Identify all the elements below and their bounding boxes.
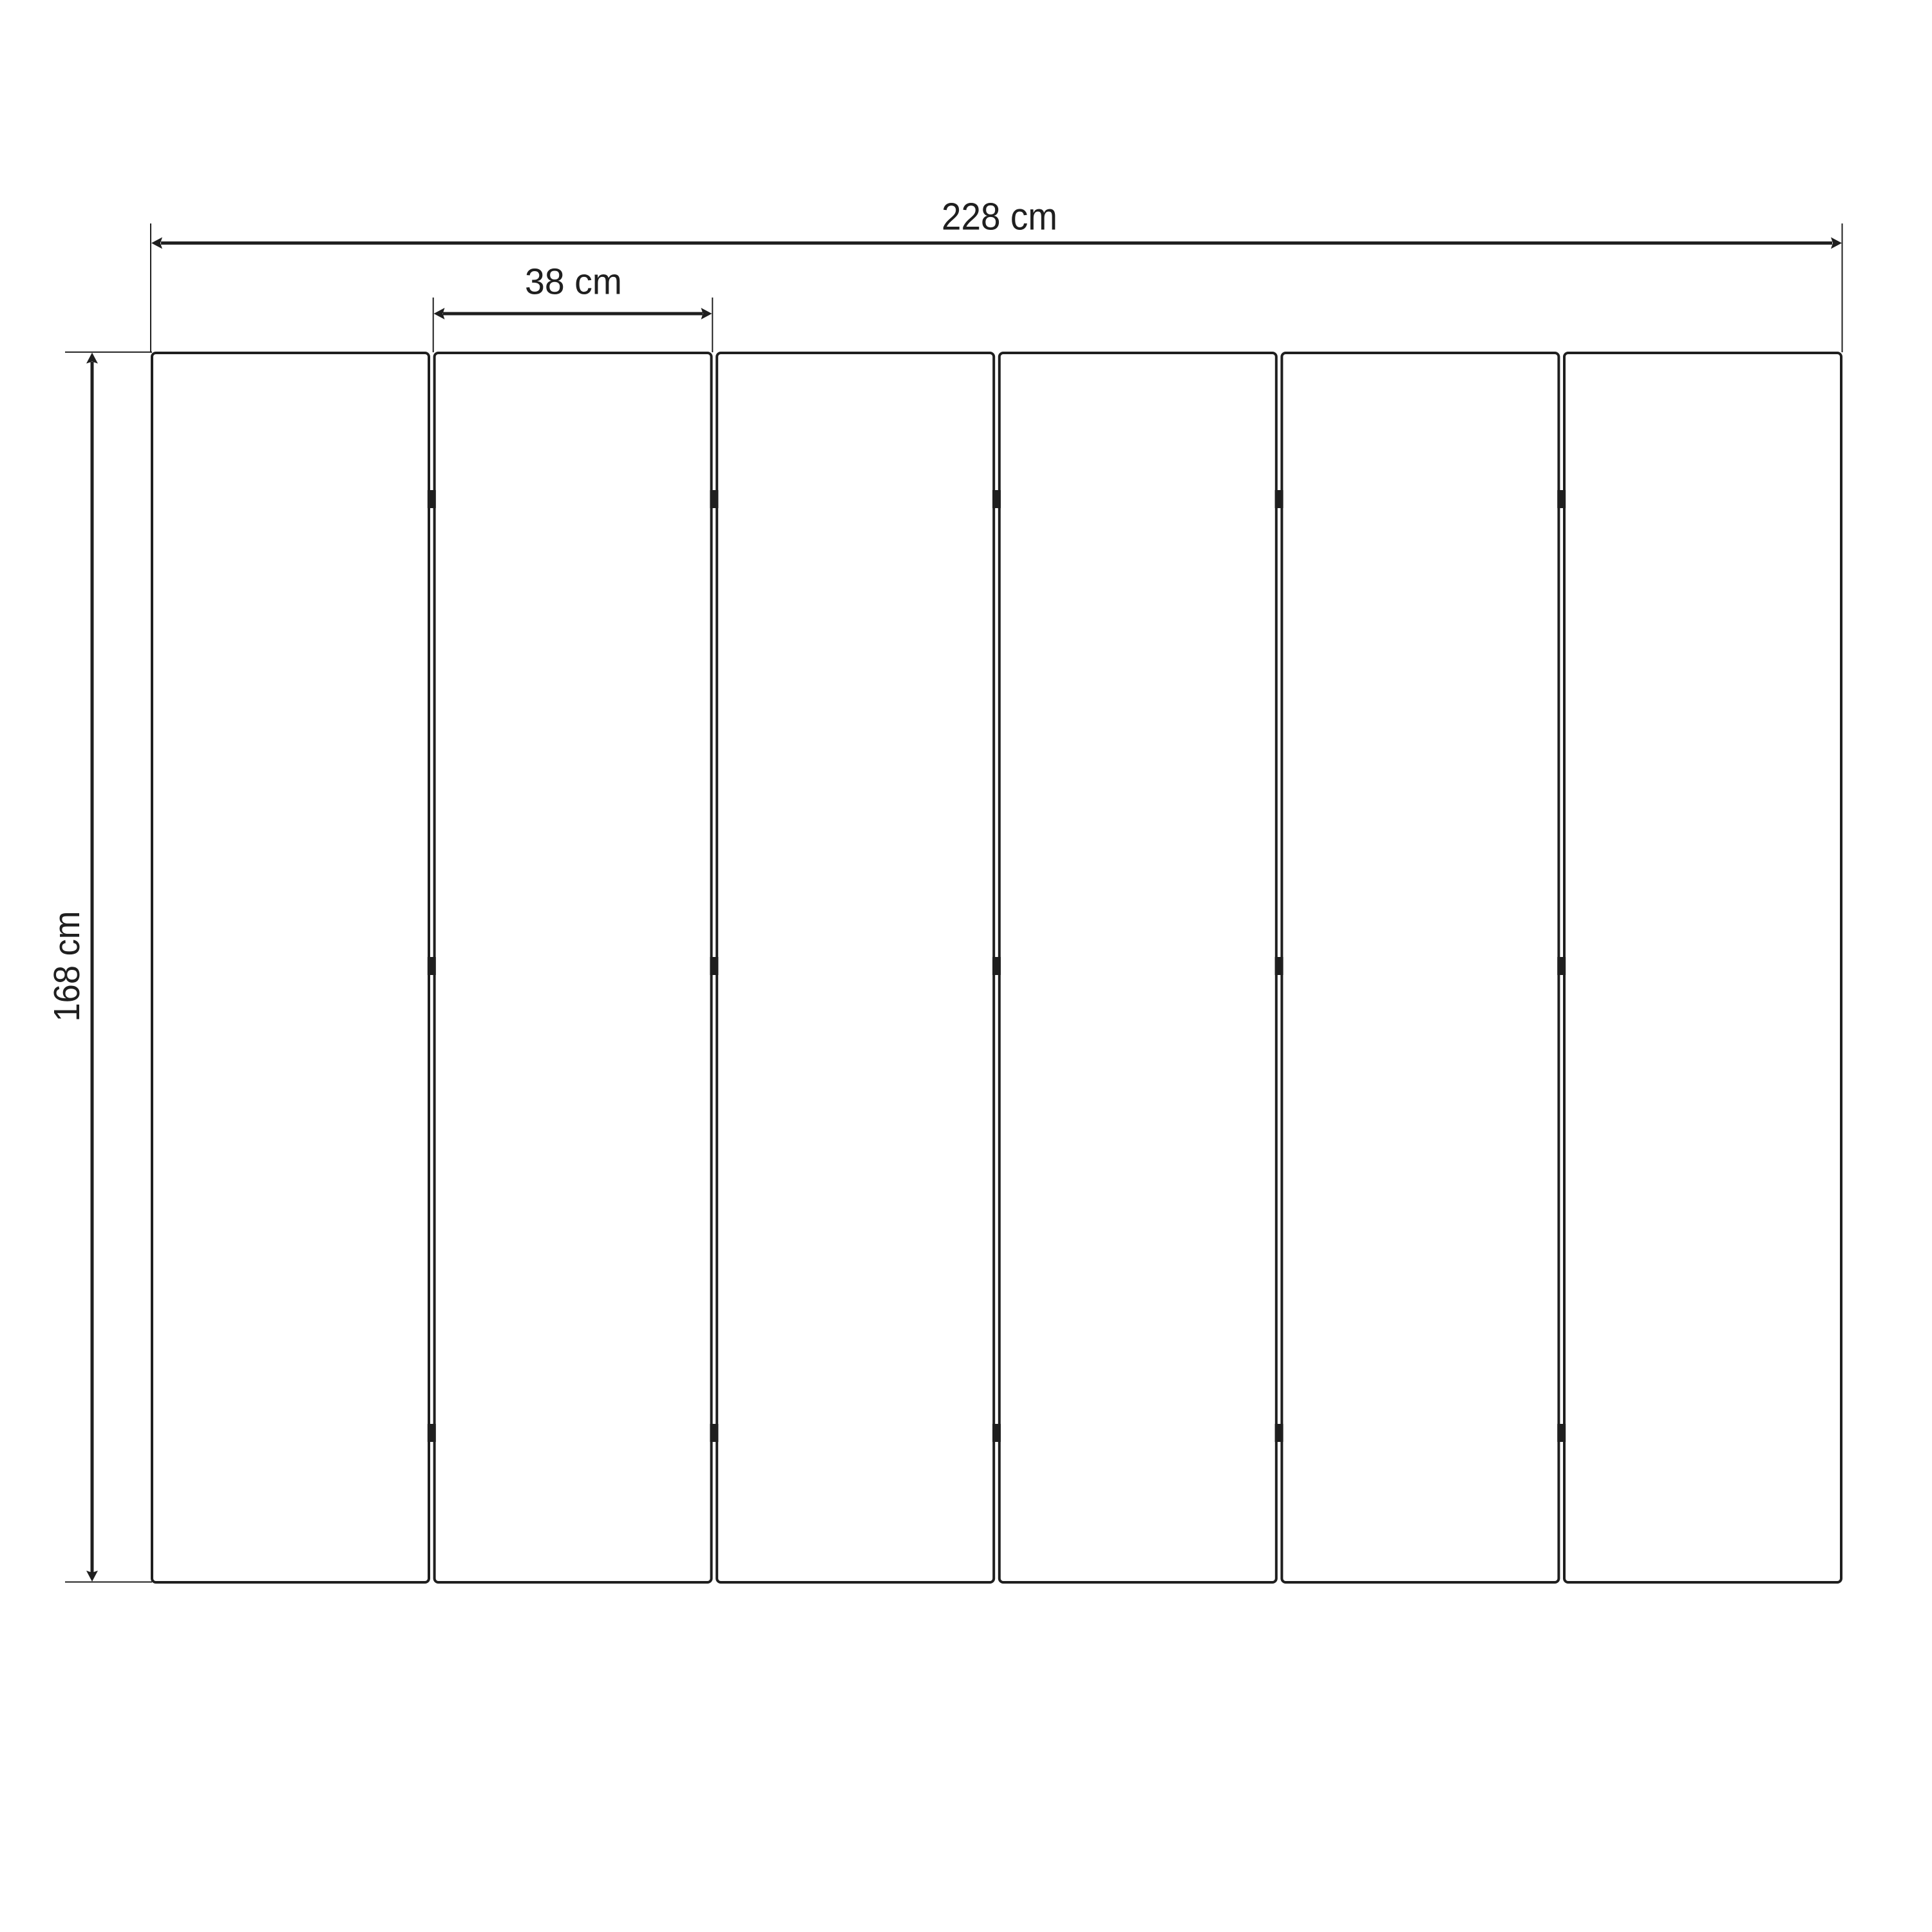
svg-text:168 cm: 168 cm (46, 911, 87, 1022)
svg-text:228 cm: 228 cm (942, 196, 1057, 238)
svg-text:38 cm: 38 cm (525, 261, 622, 303)
